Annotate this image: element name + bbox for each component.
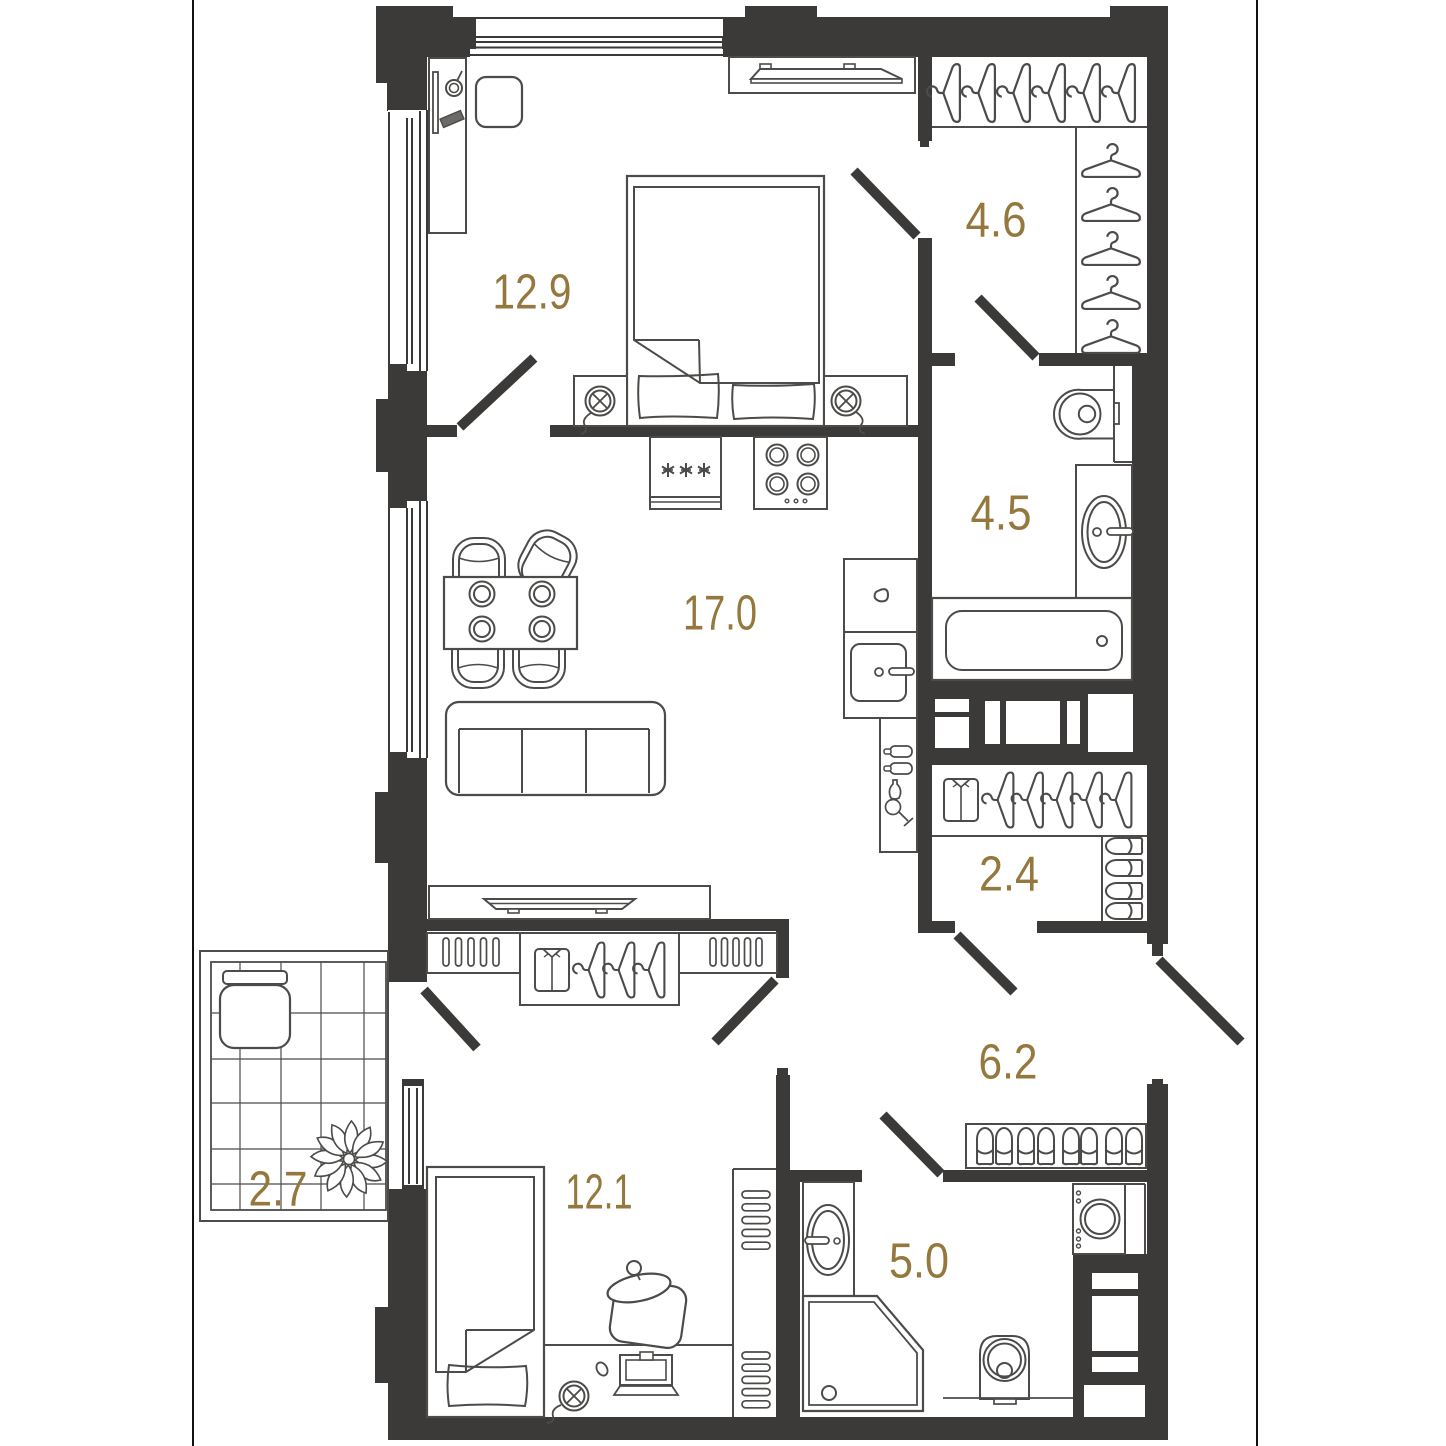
- svg-text:5.0: 5.0: [889, 1235, 949, 1289]
- svg-text:17.0: 17.0: [683, 587, 757, 641]
- svg-text:12.1: 12.1: [566, 1166, 633, 1220]
- svg-text:4.6: 4.6: [966, 194, 1027, 248]
- svg-text:12.9: 12.9: [493, 266, 572, 320]
- svg-text:2.4: 2.4: [979, 848, 1039, 902]
- svg-text:4.5: 4.5: [971, 487, 1032, 541]
- svg-text:2.7: 2.7: [249, 1163, 308, 1217]
- svg-text:6.2: 6.2: [979, 1036, 1038, 1090]
